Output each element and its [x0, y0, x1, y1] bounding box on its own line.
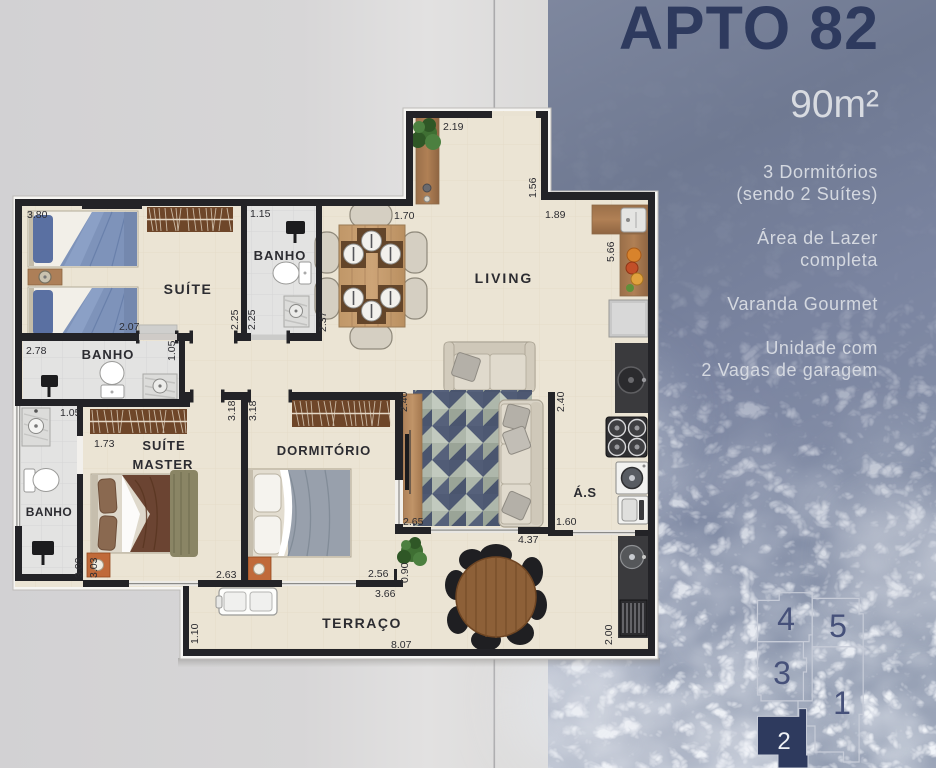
svg-text:2.56: 2.56 [368, 568, 389, 580]
svg-text:2: 2 [777, 728, 790, 755]
svg-text:TERRAÇO: TERRAÇO [322, 615, 402, 631]
svg-text:1.73: 1.73 [94, 438, 115, 450]
svg-text:8.07: 8.07 [391, 639, 412, 651]
svg-text:3 Dormitórios: 3 Dormitórios [763, 162, 878, 182]
svg-text:Varanda Gourmet: Varanda Gourmet [727, 294, 878, 314]
svg-text:SUÍTE: SUÍTE [164, 281, 213, 297]
svg-text:1.05: 1.05 [166, 340, 178, 361]
svg-text:(sendo 2 Suítes): (sendo 2 Suítes) [736, 184, 878, 204]
svg-text:Área de Lazer: Área de Lazer [757, 228, 878, 248]
svg-text:3.18: 3.18 [247, 400, 259, 421]
svg-text:APTO 82: APTO 82 [619, 0, 879, 62]
svg-text:2.07: 2.07 [119, 321, 140, 333]
svg-text:1.56: 1.56 [527, 177, 539, 198]
svg-text:Unidade com: Unidade com [765, 338, 878, 358]
svg-text:2 Vagas de garagem: 2 Vagas de garagem [701, 360, 878, 380]
svg-text:0.90: 0.90 [399, 562, 411, 583]
svg-text:LIVING: LIVING [475, 270, 534, 286]
svg-text:1.05: 1.05 [60, 407, 81, 419]
svg-text:2.25: 2.25 [246, 309, 258, 330]
svg-text:3.18: 3.18 [226, 400, 238, 421]
svg-text:BANHO: BANHO [82, 347, 135, 362]
svg-text:3.03: 3.03 [88, 557, 100, 578]
svg-text:1.89: 1.89 [545, 209, 566, 221]
svg-text:2.40: 2.40 [398, 391, 410, 412]
svg-text:1.60: 1.60 [556, 516, 577, 528]
svg-text:2.37: 2.37 [317, 311, 329, 332]
svg-text:4: 4 [777, 601, 795, 637]
svg-text:BANHO: BANHO [254, 248, 307, 263]
svg-text:3.66: 3.66 [375, 588, 396, 600]
svg-text:1.15: 1.15 [250, 208, 271, 220]
svg-text:2.00: 2.00 [603, 624, 615, 645]
svg-text:90m²: 90m² [790, 83, 879, 126]
svg-text:4.37: 4.37 [518, 534, 539, 546]
svg-text:2.19: 2.19 [443, 121, 464, 133]
svg-text:3.03: 3.03 [73, 557, 85, 578]
svg-text:SUÍTE: SUÍTE [142, 438, 185, 453]
svg-text:1.10: 1.10 [189, 623, 201, 644]
svg-text:1: 1 [833, 685, 851, 721]
svg-text:3.80: 3.80 [27, 209, 48, 221]
svg-text:1.70: 1.70 [394, 210, 415, 222]
svg-text:MASTER: MASTER [133, 457, 194, 472]
svg-text:3: 3 [773, 655, 791, 691]
svg-text:2.65: 2.65 [403, 516, 424, 528]
svg-text:Á.S: Á.S [573, 485, 596, 500]
svg-text:2.63: 2.63 [216, 569, 237, 581]
svg-text:DORMITÓRIO: DORMITÓRIO [277, 443, 372, 458]
svg-text:completa: completa [800, 250, 878, 270]
svg-text:2.25: 2.25 [229, 309, 241, 330]
svg-text:BANHO: BANHO [26, 505, 73, 519]
svg-text:2.78: 2.78 [26, 345, 47, 357]
svg-text:5: 5 [829, 608, 847, 644]
svg-text:2.40: 2.40 [555, 391, 567, 412]
svg-text:5.66: 5.66 [605, 241, 617, 262]
